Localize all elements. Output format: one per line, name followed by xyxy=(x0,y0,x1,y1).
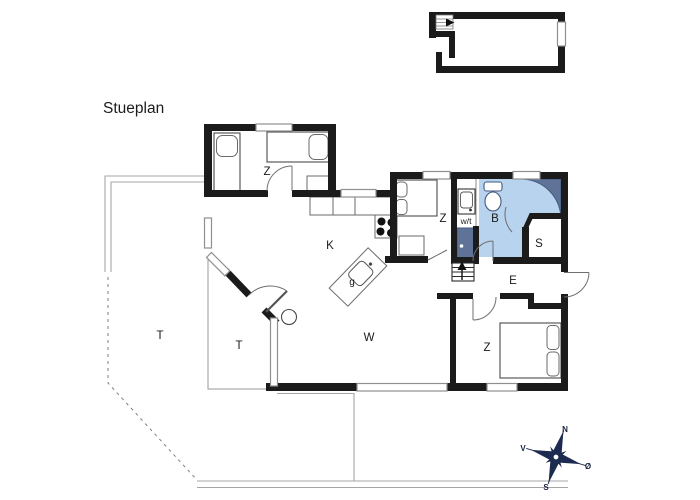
pillow xyxy=(396,200,407,215)
room-label-entrance: E xyxy=(509,275,517,287)
room-label-living-room: W xyxy=(364,332,375,344)
wood-stove-icon xyxy=(282,310,297,325)
room-label-bedroom-2: Z xyxy=(439,213,446,225)
room-label-terrace-inner: T xyxy=(235,340,242,352)
label-sink-unit: g xyxy=(349,277,355,288)
wardrobe xyxy=(307,176,330,191)
kitchen-fixtures xyxy=(310,197,397,306)
door-arc xyxy=(267,166,292,191)
compass-north-label: N xyxy=(562,425,568,434)
pillow xyxy=(396,182,407,197)
window xyxy=(256,124,292,131)
compass-south-label: S xyxy=(543,483,549,492)
window xyxy=(423,172,450,180)
entry-door-arc xyxy=(564,273,589,298)
compass-west-label: V xyxy=(520,444,526,453)
terrace-edge-outer xyxy=(105,176,206,272)
window xyxy=(341,190,376,198)
window-wide xyxy=(357,384,447,392)
door-arc xyxy=(473,297,496,320)
pillow xyxy=(547,326,559,350)
terrace-door-arc xyxy=(249,286,287,295)
washing-machine-drum-icon xyxy=(461,192,473,208)
shower-icon xyxy=(457,228,474,258)
window xyxy=(205,218,212,248)
room-label-sauna: S xyxy=(535,238,543,250)
page-title: Stueplan xyxy=(103,100,164,117)
window xyxy=(558,22,566,46)
window xyxy=(513,172,540,180)
floor-plan-page: Stueplan Z Z Z K W B S E T T w/t g N S Ø… xyxy=(0,0,700,500)
door-leaf xyxy=(428,250,447,260)
room-label-terrace-left: T xyxy=(156,330,163,342)
shower-drain-dot xyxy=(460,244,464,248)
washing-machine-knob-icon xyxy=(469,209,472,212)
room-label-bedroom-3: Z xyxy=(483,342,490,354)
dresser xyxy=(399,236,424,255)
room-label-utility: w/t xyxy=(460,216,473,226)
room-label-kitchen: K xyxy=(326,240,334,252)
pillow xyxy=(309,135,328,160)
annex-building xyxy=(429,12,566,73)
diagonal-wall xyxy=(226,271,249,295)
toilet-bowl-icon xyxy=(485,192,501,211)
kitchen-sink-unit xyxy=(329,248,387,306)
window-diagonal xyxy=(207,253,230,276)
window xyxy=(487,384,517,392)
room-label-bathroom: B xyxy=(491,213,499,225)
floor-plan-drawing: Stueplan Z Z Z K W B S E T T w/t g N S Ø… xyxy=(0,0,700,500)
compass-east-label: Ø xyxy=(585,462,591,471)
terrace-door-leaf xyxy=(266,291,287,312)
terrace-edge-inner xyxy=(111,182,206,272)
annex-entry-steps xyxy=(436,15,455,29)
pillow xyxy=(217,136,238,157)
terrace-dashed-boundary xyxy=(108,277,197,480)
toilet-tank-icon xyxy=(484,182,502,191)
inner-terrace-boundary xyxy=(208,256,266,389)
pillow xyxy=(547,352,559,376)
deck-step-edge xyxy=(277,394,354,482)
window-tall xyxy=(271,318,278,386)
compass-rose: N S Ø V xyxy=(518,422,593,493)
room-label-bedroom-1: Z xyxy=(263,166,270,178)
entry-steps xyxy=(452,262,474,282)
